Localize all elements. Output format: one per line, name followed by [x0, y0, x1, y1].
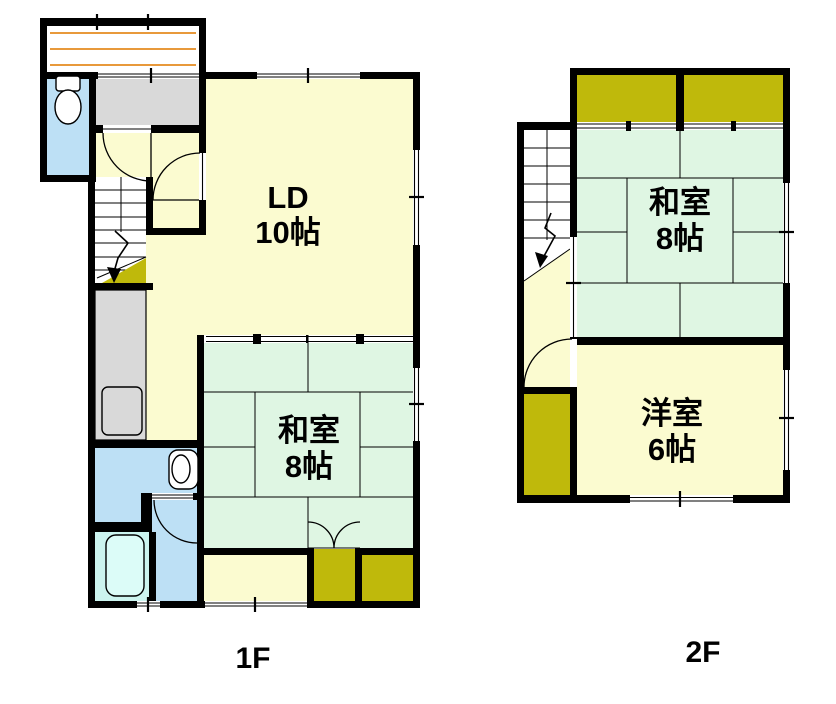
- closet-2f-a: [577, 75, 676, 122]
- washroom-sink-icon: [169, 450, 198, 489]
- bottom-corridor: [204, 548, 307, 601]
- washitsu-2f-label: 和室: [649, 185, 711, 220]
- sliding-doors-ld-washitsu: [206, 334, 413, 344]
- washitsu-1f-size: 8帖: [285, 449, 333, 484]
- closet-1f-b: [362, 555, 413, 601]
- entrance-genkan: [96, 79, 199, 125]
- bathtub-icon: [106, 535, 144, 596]
- washitsu-1f-label: 和室: [278, 413, 340, 448]
- stairs-1f: [95, 177, 146, 283]
- closet-1f-a: [314, 549, 355, 601]
- ld-room-size: 10帖: [255, 215, 320, 250]
- yoshitsu-label: 洋室: [641, 396, 703, 431]
- floor-plan: LD 10帖 和室 8帖 1F: [0, 0, 836, 704]
- yoshitsu-size: 6帖: [648, 432, 696, 467]
- stairs-2f: [524, 130, 570, 387]
- ld-room-label: LD: [267, 180, 308, 215]
- closet-sliding-doors-2f: [577, 121, 783, 131]
- floor-2f: 和室 8帖 洋室 6帖 2F: [517, 68, 794, 669]
- toilet-icon: [55, 76, 81, 124]
- floor-2f-label: 2F: [685, 636, 720, 669]
- kitchen-counter: [95, 290, 146, 440]
- floor-1f-label: 1F: [235, 642, 270, 675]
- floor-1f: LD 10帖 和室 8帖 1F: [40, 14, 424, 675]
- closet-2f-b: [684, 75, 783, 122]
- closet-2f-c: [524, 394, 570, 495]
- washitsu-2f-size: 8帖: [656, 221, 704, 256]
